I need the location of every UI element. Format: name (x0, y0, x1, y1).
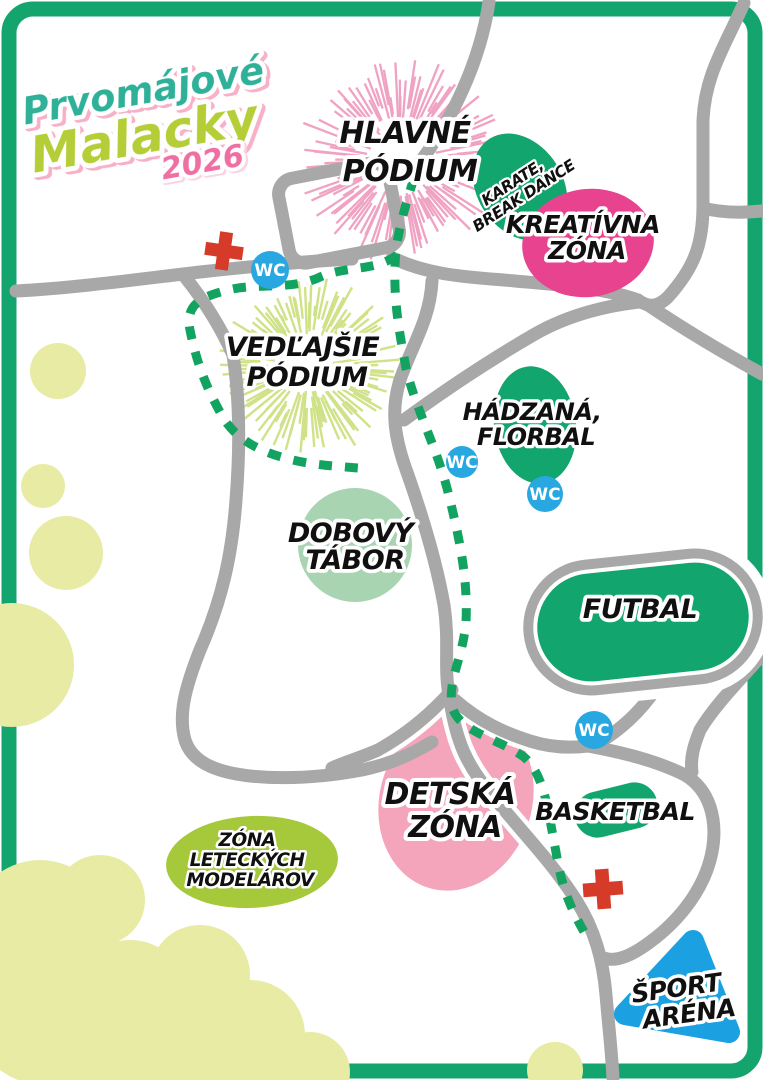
tree (21, 464, 65, 508)
label-vedlajsie-podium: VEDĽAJŠIE PÓDIUM (226, 331, 388, 393)
road-segment (703, 208, 762, 212)
wc-label: WC (254, 261, 285, 281)
wc-label: WC (529, 485, 560, 505)
tree (30, 343, 86, 399)
wc-label: WC (446, 453, 477, 473)
label-dobovy-tabor: DOBOVÝ TÁBOR (288, 517, 422, 576)
wc-badge: WC (251, 251, 289, 289)
wc-badge: WC (446, 446, 478, 478)
tree (29, 516, 103, 590)
tree (55, 855, 145, 945)
label-basketbal: BASKETBAL (535, 797, 695, 826)
festival-map: WC WC WC WC HLAVNÉ PÓDIUM KARATE, BREAK … (0, 0, 763, 1080)
wc-badge: WC (527, 476, 563, 512)
label-futbal: FUTBAL (583, 594, 697, 625)
label-hadzana-florbal: HÁDZANÁ, FLORBAL (463, 397, 610, 451)
wc-badge: WC (575, 711, 613, 749)
wc-label: WC (578, 721, 609, 741)
